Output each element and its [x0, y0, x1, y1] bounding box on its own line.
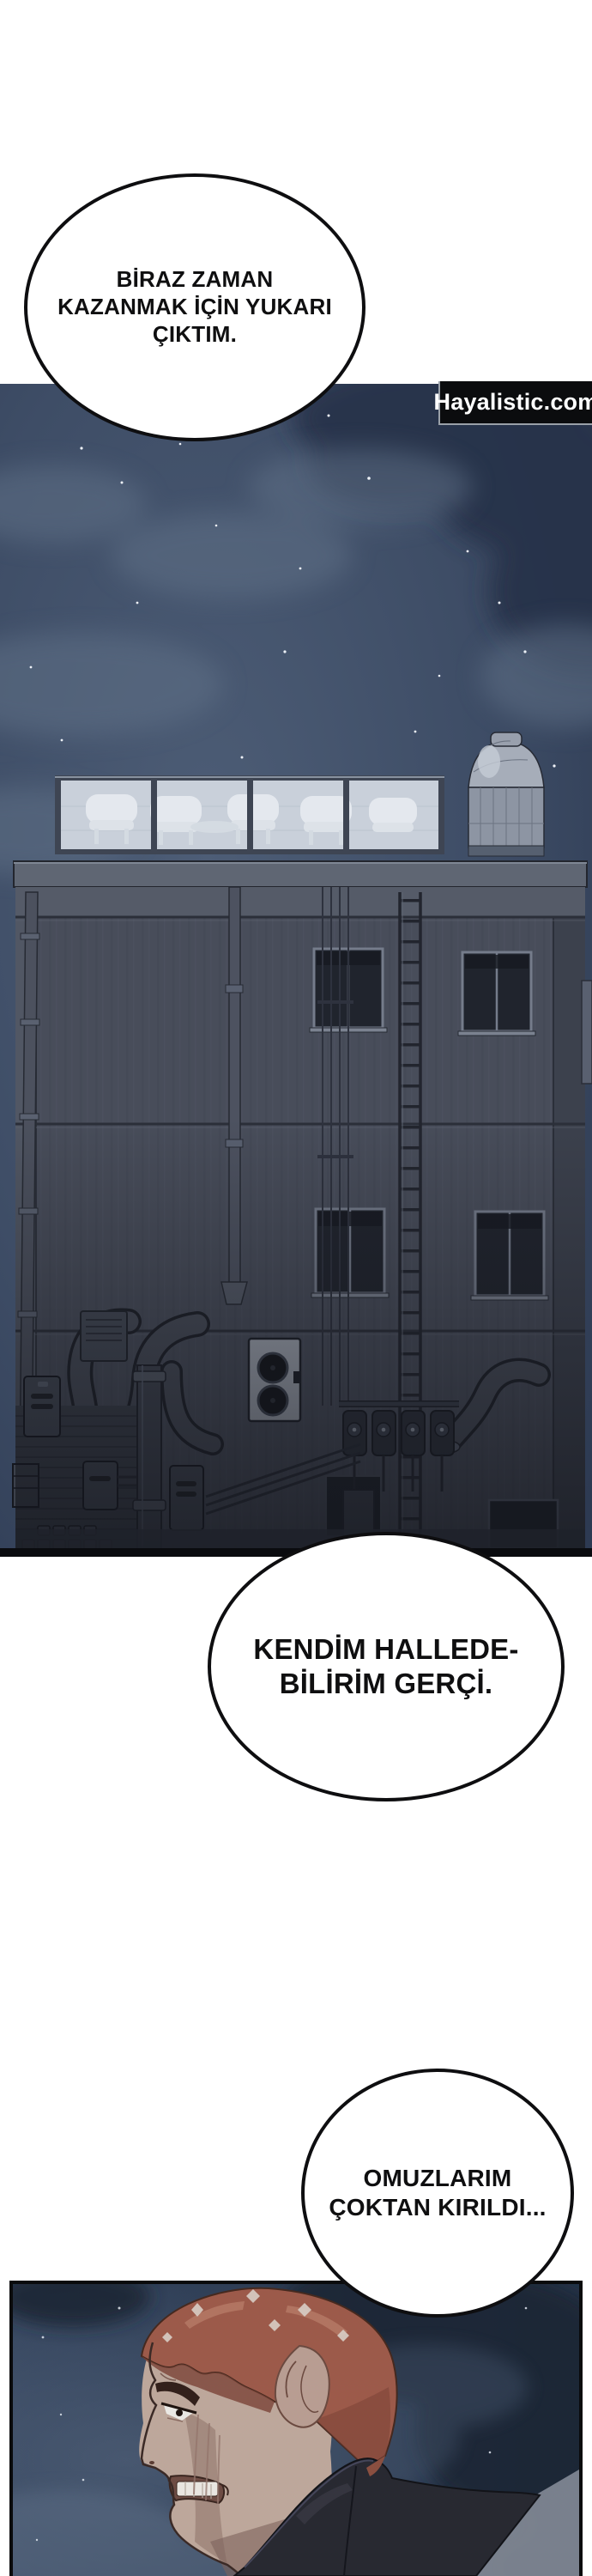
rooftop-glass-enclosure — [55, 775, 444, 854]
nostril — [149, 2461, 154, 2464]
facade-shadow — [15, 887, 585, 1548]
speech-bubble-1: BİRAZ ZAMAN KAZANMAK İÇİN YUKARI ÇIKTIM. — [24, 173, 365, 441]
man-profile-panel — [9, 2281, 583, 2576]
speech-bubble-3: OMUZLARIM ÇOKTAN KIRILDI... — [301, 2069, 574, 2318]
speech-text: OMUZLARIM ÇOKTAN KIRILDI... — [329, 2164, 546, 2222]
watermark-badge: Hayalistic.com — [438, 381, 592, 425]
speech-bubble-2: KENDİM HALLEDE- BİLİRİM GERÇİ. — [208, 1532, 565, 1801]
speech-text: BİRAZ ZAMAN KAZANMAK İÇİN YUKARI ÇIKTIM. — [57, 266, 332, 348]
roof-slab — [14, 861, 587, 887]
ground-shadow — [15, 1529, 585, 1550]
speech-text: KENDİM HALLEDE- BİLİRİM GERÇİ. — [253, 1632, 518, 1702]
night-building-panel — [0, 384, 592, 1557]
watermark-label: Hayalistic.com — [434, 389, 592, 416]
webtoon-page: Hayalistic.com BİRAZ ZAMAN KAZANMAK İÇİN… — [0, 0, 592, 2576]
